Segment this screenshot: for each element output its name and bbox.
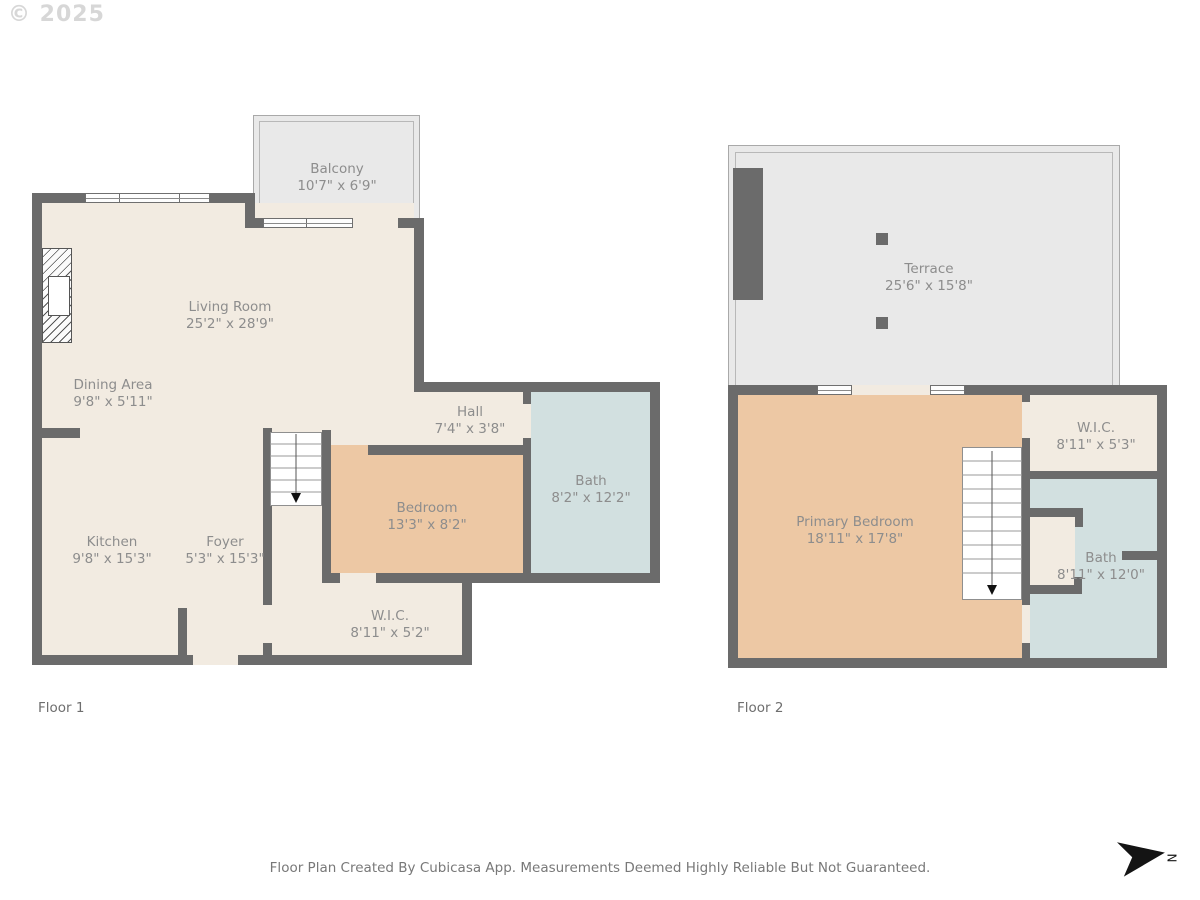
room-dims: 13'3" x 8'2" (387, 517, 466, 534)
window-mullion (179, 194, 180, 202)
wall (263, 643, 272, 665)
wall (376, 573, 531, 583)
wall (414, 382, 660, 392)
room-dims: 9'8" x 5'11" (73, 394, 152, 411)
wall (1157, 385, 1167, 668)
room-name: W.I.C. (1056, 420, 1135, 437)
room-dims: 8'2" x 12'2" (551, 490, 630, 507)
wall (32, 193, 85, 203)
window-mullion (306, 219, 307, 227)
disclaimer: Floor Plan Created By Cubicasa App. Meas… (0, 860, 1200, 876)
room-dims: 5'3" x 15'3" (185, 551, 264, 568)
wall (1022, 643, 1030, 668)
room-label-balcony: Balcony 10'7" x 6'9" (297, 161, 376, 195)
room-label-kitchen: Kitchen 9'8" x 15'3" (72, 534, 151, 568)
room-label-dining-area: Dining Area 9'8" x 5'11" (73, 377, 152, 411)
room-name: Living Room (186, 299, 274, 316)
wall (462, 583, 472, 665)
room-dims: 8'11" x 5'2" (350, 625, 429, 642)
wall (728, 385, 817, 395)
stairs-down-floor2 (962, 447, 1022, 600)
wall (523, 573, 660, 583)
door-opening (852, 385, 930, 395)
wall (414, 218, 424, 392)
terrace-post (876, 317, 888, 329)
sliding-door-window (263, 218, 353, 228)
room-label-terrace: Terrace 25'6" x 15'8" (885, 261, 973, 295)
north-label: N (1165, 854, 1179, 863)
wall (650, 382, 660, 583)
room-dims: 25'2" x 28'9" (186, 316, 274, 333)
fireplace-firebox (48, 276, 70, 316)
wall (238, 655, 472, 665)
room-dims: 7'4" x 3'8" (435, 421, 506, 438)
room-label-hall: Hall 7'4" x 3'8" (435, 404, 506, 438)
room-label-wic2: W.I.C. 8'11" x 5'3" (1056, 420, 1135, 454)
room-name: Balcony (297, 161, 376, 178)
wall (1075, 508, 1083, 527)
wall (1030, 471, 1157, 479)
room-dims: 9'8" x 15'3" (72, 551, 151, 568)
room-dims: 25'6" x 15'8" (885, 278, 973, 295)
room-label-primary-bedroom: Primary Bedroom 18'11" x 17'8" (796, 514, 914, 548)
room-name: Kitchen (72, 534, 151, 551)
door-opening (353, 218, 398, 228)
room-label-foyer: Foyer 5'3" x 15'3" (185, 534, 264, 568)
floor-plan-canvas: © 2025 (0, 0, 1200, 900)
room-label-bath2: Bath 8'11" x 12'0" (1057, 550, 1145, 584)
room-name: Bath (1057, 550, 1145, 567)
wall (965, 385, 1167, 395)
stairs-down-floor1 (270, 432, 322, 506)
room-name: Dining Area (73, 377, 152, 394)
wall (32, 193, 42, 665)
watermark: © 2025 (8, 2, 105, 27)
terrace-wall-block (733, 168, 763, 300)
wall (331, 573, 340, 583)
room-label-bath1: Bath 8'2" x 12'2" (551, 473, 630, 507)
wall (368, 445, 531, 455)
floor1-label: Floor 1 (38, 700, 84, 716)
room-dims: 8'11" x 5'3" (1056, 437, 1135, 454)
wall (523, 392, 531, 404)
wall (1022, 385, 1030, 402)
wall (32, 655, 193, 665)
wall (1022, 438, 1030, 605)
room-name: W.I.C. (350, 608, 429, 625)
floor2-label: Floor 2 (737, 700, 783, 716)
room-dims: 8'11" x 12'0" (1057, 567, 1145, 584)
door-opening (523, 404, 531, 438)
wall (728, 658, 1167, 668)
north-arrow-icon: N (1115, 833, 1179, 881)
room-dims: 18'11" x 17'8" (796, 531, 914, 548)
wall (523, 438, 531, 573)
room-name: Primary Bedroom (796, 514, 914, 531)
room-label-wic1: W.I.C. 8'11" x 5'2" (350, 608, 429, 642)
room-name: Terrace (885, 261, 973, 278)
terrace-post (876, 233, 888, 245)
window-mullion (119, 194, 120, 202)
room-name: Hall (435, 404, 506, 421)
room-name: Bath (551, 473, 630, 490)
room-name: Bedroom (387, 500, 466, 517)
room-label-bedroom: Bedroom 13'3" x 8'2" (387, 500, 466, 534)
wall (178, 608, 187, 655)
door-opening (1022, 605, 1030, 643)
window (817, 385, 852, 395)
wall (322, 430, 331, 583)
room-name: Foyer (185, 534, 264, 551)
room-dims: 10'7" x 6'9" (297, 178, 376, 195)
window (85, 193, 210, 203)
window (930, 385, 965, 395)
room-label-living-room: Living Room 25'2" x 28'9" (186, 299, 274, 333)
wall (42, 428, 80, 438)
door-opening (1022, 402, 1030, 438)
wall (728, 385, 738, 668)
